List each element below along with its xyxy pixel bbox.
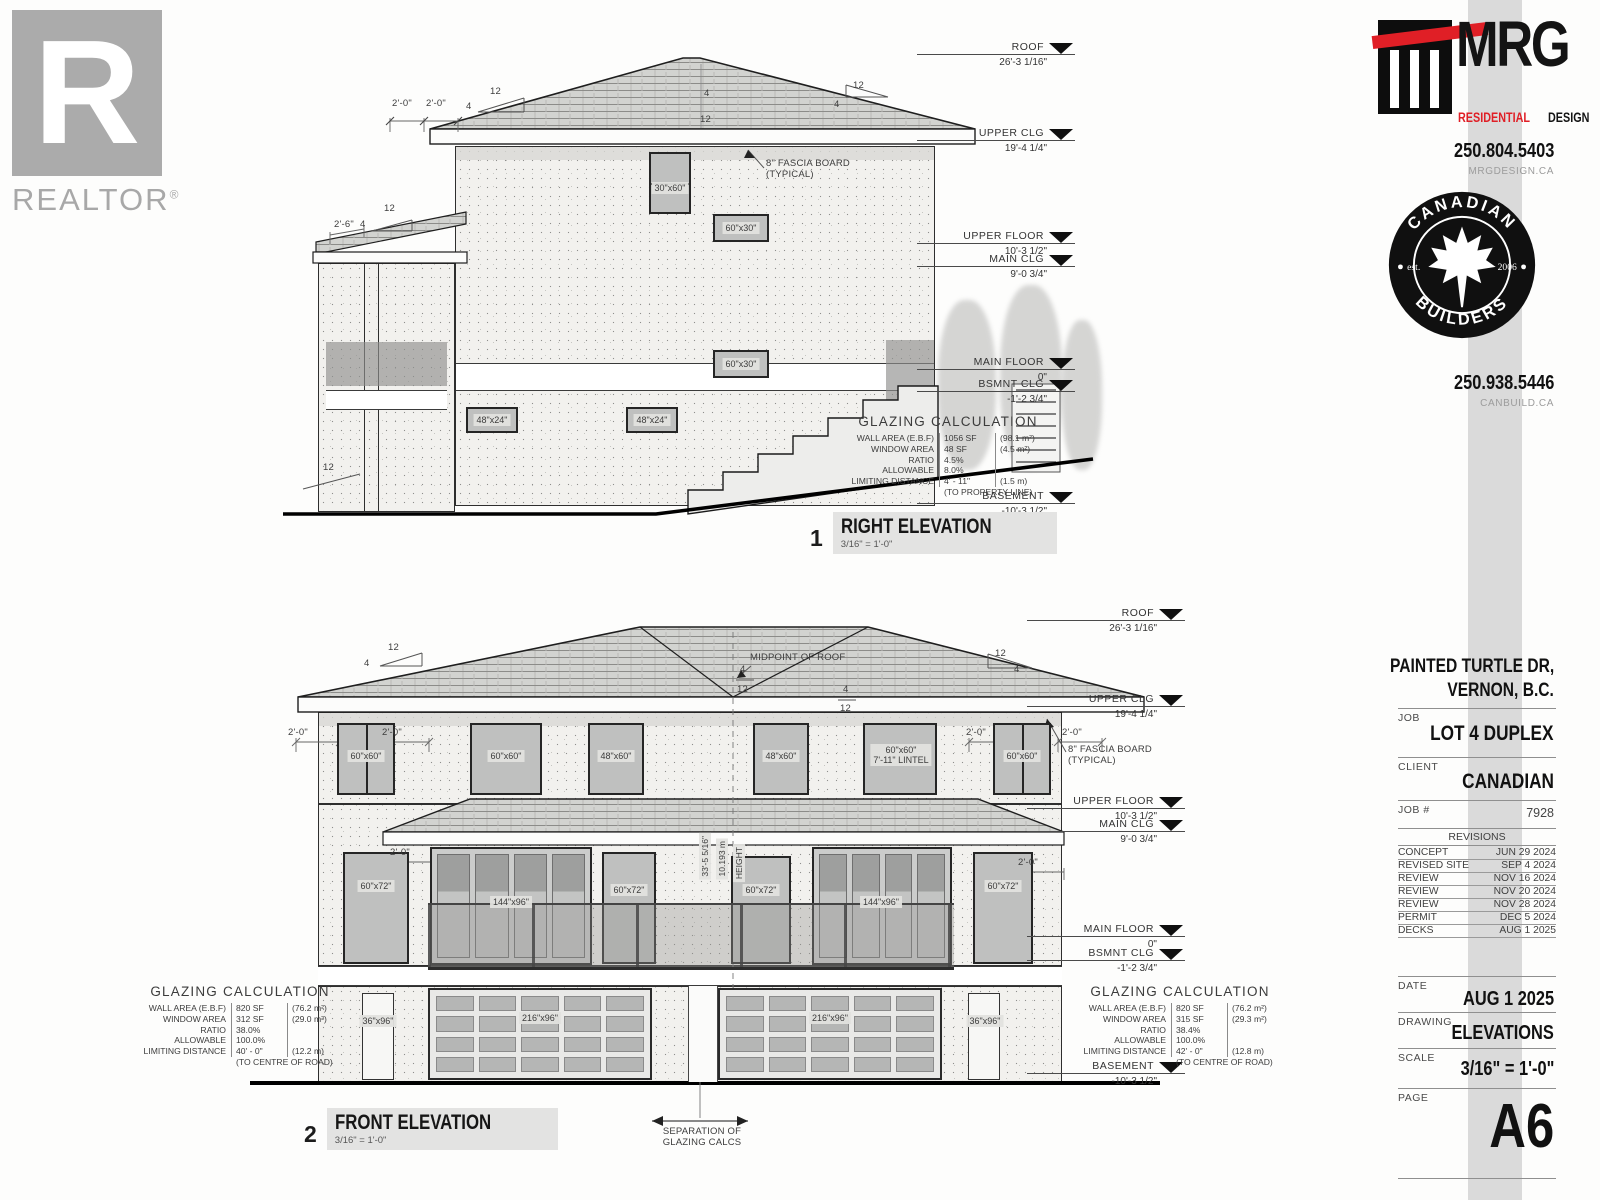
pitch-label: 4 [740,664,745,675]
glazing-title: GLAZING CALCULATION [128,984,352,999]
level-marker-icon [1049,380,1073,391]
level-name: MAIN CLG [989,253,1044,265]
pitch-label: 12 [853,80,864,91]
window-size-label: 60"x72" [611,884,648,896]
level-marker: UPPER CLG19'-4 1/4" [1027,693,1185,720]
deck-rail-band [326,390,447,410]
level-marker: MAIN CLG9'-0 3/4" [917,253,1075,280]
pitch-label: 4 [704,88,709,99]
glazing-calculation-table: GLAZING CALCULATION WALL AREA (E.B.F)820… [128,984,352,1068]
level-dim: 9'-0 3/4" [1027,834,1185,845]
level-dim: -1'-2 3/4" [917,394,1075,405]
wall-shading [319,713,1061,726]
glazing-note: (TO CENTRE OF ROAD) [236,1057,352,1068]
front-elevation-roof [298,627,1144,697]
dimension-label: 2'-0" [1018,857,1038,868]
glazing-note: (TO PROPERTY LINE) [944,487,1060,498]
revision-row: DECKSAUG 1 2025 [1398,925,1556,938]
builders-phone: 250.938.5446 [1432,372,1554,395]
realtor-logo: R [12,10,162,176]
window-size-label: 30"x60" [652,182,689,194]
garage-door-216x96 [718,988,942,1080]
window-size-label: 60"x30" [723,222,760,234]
level-name: MAIN FLOOR [974,356,1044,368]
fascia-note: 8" FASCIA BOARD [1068,744,1152,755]
level-dim: 26'-3 1/16" [917,57,1075,68]
revision-row: REVISED SITESEP 4 2024 [1398,860,1556,873]
fascia-note: (TYPICAL) [766,169,814,180]
level-marker: MAIN CLG9'-0 3/4" [1027,818,1185,845]
level-name: ROOF [1122,607,1154,619]
fascia-note: (TYPICAL) [1068,755,1116,766]
wall-shading [456,147,934,160]
level-marker-icon [1159,695,1183,706]
job-number-label: JOB # [1398,804,1430,816]
height-metric-label: 10.193 m [716,838,728,879]
level-marker-icon [1049,232,1073,243]
window-size-label: 48"x60" [763,750,800,762]
job-number-value: 7928 [1526,806,1554,820]
revision-row: CONCEPTJUN 29 2024 [1398,847,1556,860]
revision-row: PERMITDEC 5 2024 [1398,912,1556,925]
mrg-website: MRGDESIGN.CA [1468,166,1554,177]
level-dim: 26'-3 1/16" [1027,623,1185,634]
revisions-title: REVISIONS [1398,831,1556,843]
window-size-label: 48"x24" [474,414,511,426]
window-size-label: 144"x96" [860,896,902,908]
realtor-watermark-text: REALTOR® [12,182,180,218]
garage-door-size-label: 216"x96" [519,1012,561,1024]
level-name: BSMNT CLG [978,378,1044,390]
window-size-label: 60"x60"7'-11" LINTEL [870,744,931,766]
level-dim: -10'-3 1/2" [1027,1076,1185,1087]
date-label: DATE [1398,980,1427,992]
glazing-calculation-table: GLAZING CALCULATION WALL AREA (E.B.F)820… [1068,984,1292,1068]
client-value: CANADIAN [1442,770,1554,794]
svg-text:2006: 2006 [1498,262,1517,273]
height-word-label: HEIGHT [733,844,745,882]
drawing-number: 1 [810,525,823,552]
pitch-label: 12 [737,684,748,695]
entry-door-36x96 [362,993,394,1080]
level-dim: -1'-2 3/4" [1027,963,1185,974]
level-marker-icon [1159,797,1183,808]
revision-row: REVIEWNOV 16 2024 [1398,873,1556,886]
level-name: BSMNT CLG [1088,947,1154,959]
level-marker-icon [1049,43,1073,54]
pitch-label: 4 [360,219,365,230]
level-name: UPPER FLOOR [1073,795,1154,807]
dimension-label: 2'-0" [392,98,412,109]
level-name: UPPER FLOOR [963,230,1044,242]
project-address: PAINTED TURTLE DR, [1354,656,1554,678]
level-marker-icon [1159,820,1183,831]
client-label: CLIENT [1398,761,1438,773]
glazing-calculation-table: GLAZING CALCULATION WALL AREA (E.B.F)105… [836,414,1060,498]
level-marker: BSMNT CLG-1'-2 3/4" [1027,947,1185,974]
level-name: ROOF [1012,41,1044,53]
pitch-label: 4 [1014,664,1019,675]
window-size-label: 48"x60" [598,750,635,762]
dimension-label: 2'-0" [966,727,986,738]
fascia-note: 8" FASCIA BOARD [766,158,850,169]
window-size-label: 60"x60" [488,750,525,762]
drawing-scale: 3/16" = 1'-0" [841,539,1029,550]
pitch-label: 12 [490,86,501,97]
deck-glass [326,342,447,386]
level-marker: MAIN FLOOR0" [1027,923,1185,950]
window-size-label: 144"x96" [490,896,532,908]
window-60x72 [973,852,1033,964]
window-size-label: 60"x72" [743,884,780,896]
svg-text:est.: est. [1407,262,1420,273]
badge-dot-icon [1521,264,1526,269]
level-marker-icon [1159,925,1183,936]
pitch-label: 4 [843,684,848,695]
separation-note: GLAZING CALCS [660,1137,744,1148]
revision-row: REVIEWNOV 28 2024 [1398,899,1556,912]
entry-door-36x96 [968,993,1000,1080]
window-size-label: 60"x72" [985,880,1022,892]
job-value: LOT 4 DUPLEX [1403,722,1554,746]
mrg-phone: 250.804.5403 [1432,140,1554,163]
drawing-title-text: FRONT ELEVATION [335,1111,491,1135]
title-block-strip [1468,0,1522,1200]
drawing-title-text: RIGHT ELEVATION [841,515,992,539]
page-value: A6 [1475,1096,1554,1158]
dimension-label: 2'-0" [426,98,446,109]
level-dim: 9'-0 3/4" [917,269,1075,280]
window-size-label: 48"x24" [634,414,671,426]
arrow-right-icon [737,1116,748,1126]
dimension-label: 2'-0" [288,727,308,738]
window-size-label: 60"x60" [348,750,385,762]
pitch-label: 12 [995,648,1006,659]
drawing-value: ELEVATIONS [1429,1022,1554,1045]
separation-note: SEPARATION OF [662,1126,742,1137]
level-marker-icon [1159,949,1183,960]
deck-fascia [313,252,467,263]
mrg-logo-icon [1378,20,1452,114]
level-name: MAIN CLG [1099,818,1154,830]
drawing-number: 2 [304,1121,317,1148]
slope-label: 12 [323,462,334,473]
level-marker: UPPER CLG19'-4 1/4" [917,127,1075,154]
revision-row: REVIEWNOV 20 2024 [1398,886,1556,899]
glazing-note: (TO CENTRE OF ROAD) [1176,1057,1292,1068]
level-marker: BSMNT CLG-1'-2 3/4" [917,378,1075,405]
drawing-title-front-elevation: 2 FRONT ELEVATION3/16" = 1'-0" [304,1108,558,1150]
level-marker-icon [1049,358,1073,369]
level-dim: 19'-4 1/4" [917,143,1075,154]
level-marker-icon [1159,609,1183,620]
garage-door-216x96 [428,988,652,1080]
mrg-logo-text: MRG [1456,12,1596,76]
dimension-label: 2'-0" [390,847,410,858]
drawing-scale: 3/16" = 1'-0" [335,1135,530,1146]
garage-door-size-label: 216"x96" [809,1012,851,1024]
dimension-label: 2'-0" [382,727,402,738]
glazing-title: GLAZING CALCULATION [836,414,1060,429]
pitch-label: 4 [364,658,369,669]
window-size-label: 60"x60" [1004,750,1041,762]
height-dimension-label: 33'-5 5/16" [699,833,711,880]
level-name: MAIN FLOOR [1084,923,1154,935]
builders-website: CANBUILD.CA [1480,398,1554,409]
scale-label: SCALE [1398,1052,1435,1064]
realtor-logo-letter: R [34,26,141,159]
date-value: AUG 1 2025 [1443,988,1554,1011]
pitch-label: 4 [466,101,471,112]
glazing-title: GLAZING CALCULATION [1068,984,1292,999]
elevation-sheet: R REALTOR® [0,0,1600,1200]
front-elevation-fascia [298,697,1144,712]
entry-door-size-label: 36"x96" [967,1015,1004,1027]
scale-value: 3/16" = 1'-0" [1440,1058,1554,1081]
window-size-label: 60"x30" [723,358,760,370]
pitch-label: 12 [700,114,711,125]
project-address: VERNON, B.C. [1424,680,1554,702]
entry-door-size-label: 36"x96" [360,1015,397,1027]
pitch-label: 12 [384,203,395,214]
badge-dot-icon [1398,264,1403,269]
dimension-label: 2'-0" [1062,727,1082,738]
level-marker-icon [1049,129,1073,140]
deck-post [364,263,379,512]
canadian-builders-badge: CANADIAN BUILDERS est. 2006 [1386,188,1538,340]
party-wall-pillar [688,986,718,1082]
pitch-label: 4 [834,99,839,110]
level-name: UPPER CLG [979,127,1044,139]
window-60x72 [343,852,409,964]
balcony-railing [428,903,954,970]
right-elevation-deck-wall [318,263,455,512]
main-floor-band [456,363,934,391]
page-label: PAGE [1398,1092,1428,1104]
midpoint-of-roof-label: MIDPOINT OF ROOF [750,652,845,663]
level-marker: ROOF26'-3 1/16" [1027,607,1185,634]
drawing-title-right-elevation: 1 RIGHT ELEVATION3/16" = 1'-0" [810,512,1057,554]
window-size-label: 60"x72" [358,880,395,892]
level-name: UPPER CLG [1089,693,1154,705]
pitch-label: 12 [388,642,399,653]
level-marker: ROOF26'-3 1/16" [917,41,1075,68]
dimension-label: 2'-6" [334,219,354,230]
pitch-label: 12 [840,703,851,714]
mrg-logo-subtitle: RESIDENTIALDESIGN [1458,110,1600,125]
level-marker-icon [1049,255,1073,266]
arrow-left-icon [652,1116,663,1126]
right-elevation-fascia [430,129,975,144]
level-dim: 19'-4 1/4" [1027,709,1185,720]
